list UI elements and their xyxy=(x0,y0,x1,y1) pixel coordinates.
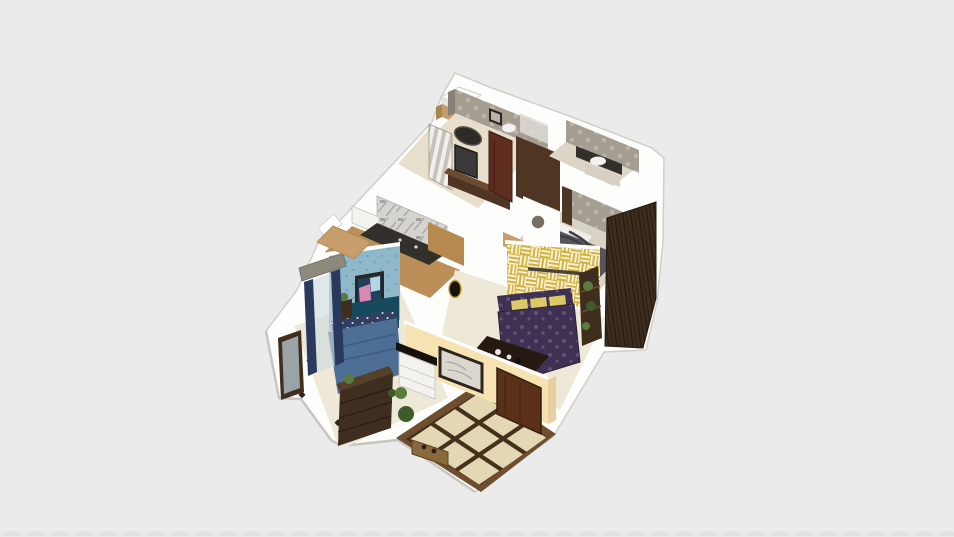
bottom-edge-strip xyxy=(0,530,954,537)
ladder-plant-shelf xyxy=(579,266,602,346)
toilet xyxy=(502,124,516,133)
standing-mirror xyxy=(278,330,304,400)
hall-door-red xyxy=(489,131,512,202)
sink xyxy=(590,157,606,166)
oval-wall-decor xyxy=(449,281,461,298)
floorplan-render xyxy=(0,0,954,537)
potted-plant xyxy=(388,389,396,397)
entry-plant xyxy=(395,387,407,399)
brown-accent-strip xyxy=(562,186,572,226)
wardrobe-tall xyxy=(605,202,656,348)
porthole-opening xyxy=(531,215,545,229)
potted-plant xyxy=(344,374,354,384)
floorplan-viewport[interactable] xyxy=(0,0,954,537)
entry-plant xyxy=(398,406,414,422)
